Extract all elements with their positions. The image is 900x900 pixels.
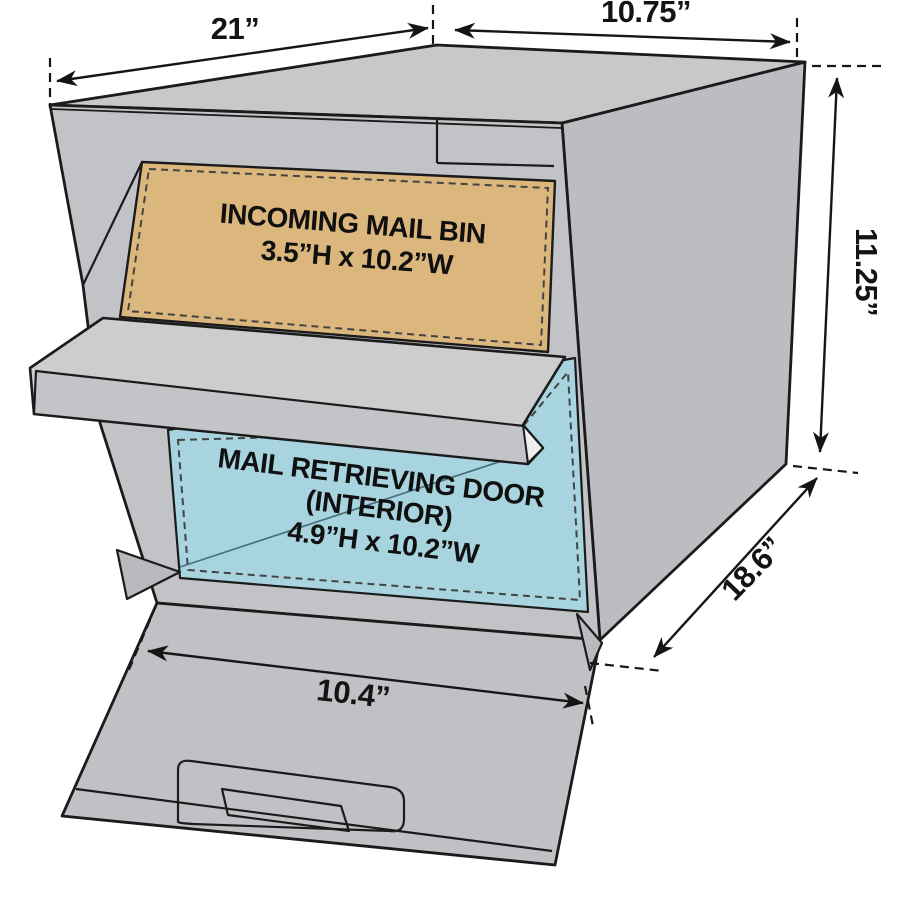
- extension-line-1125-bottom: [793, 466, 858, 473]
- mailbox-dimensions-diagram: INCOMING MAIL BIN 3.5”H x 10.2”W MAIL RE…: [0, 0, 900, 900]
- dim-label-21: 21”: [211, 11, 259, 46]
- dim-label-1125: 11.25”: [849, 228, 884, 316]
- open-door-panel: [62, 603, 600, 865]
- dim-label-1075: 10.75”: [601, 0, 691, 29]
- dim-label-186: 18.6”: [714, 530, 790, 607]
- extension-line-186-bottom: [590, 663, 663, 671]
- dim-arrow-1125: [820, 78, 837, 452]
- dim-arrow-1075: [455, 30, 790, 42]
